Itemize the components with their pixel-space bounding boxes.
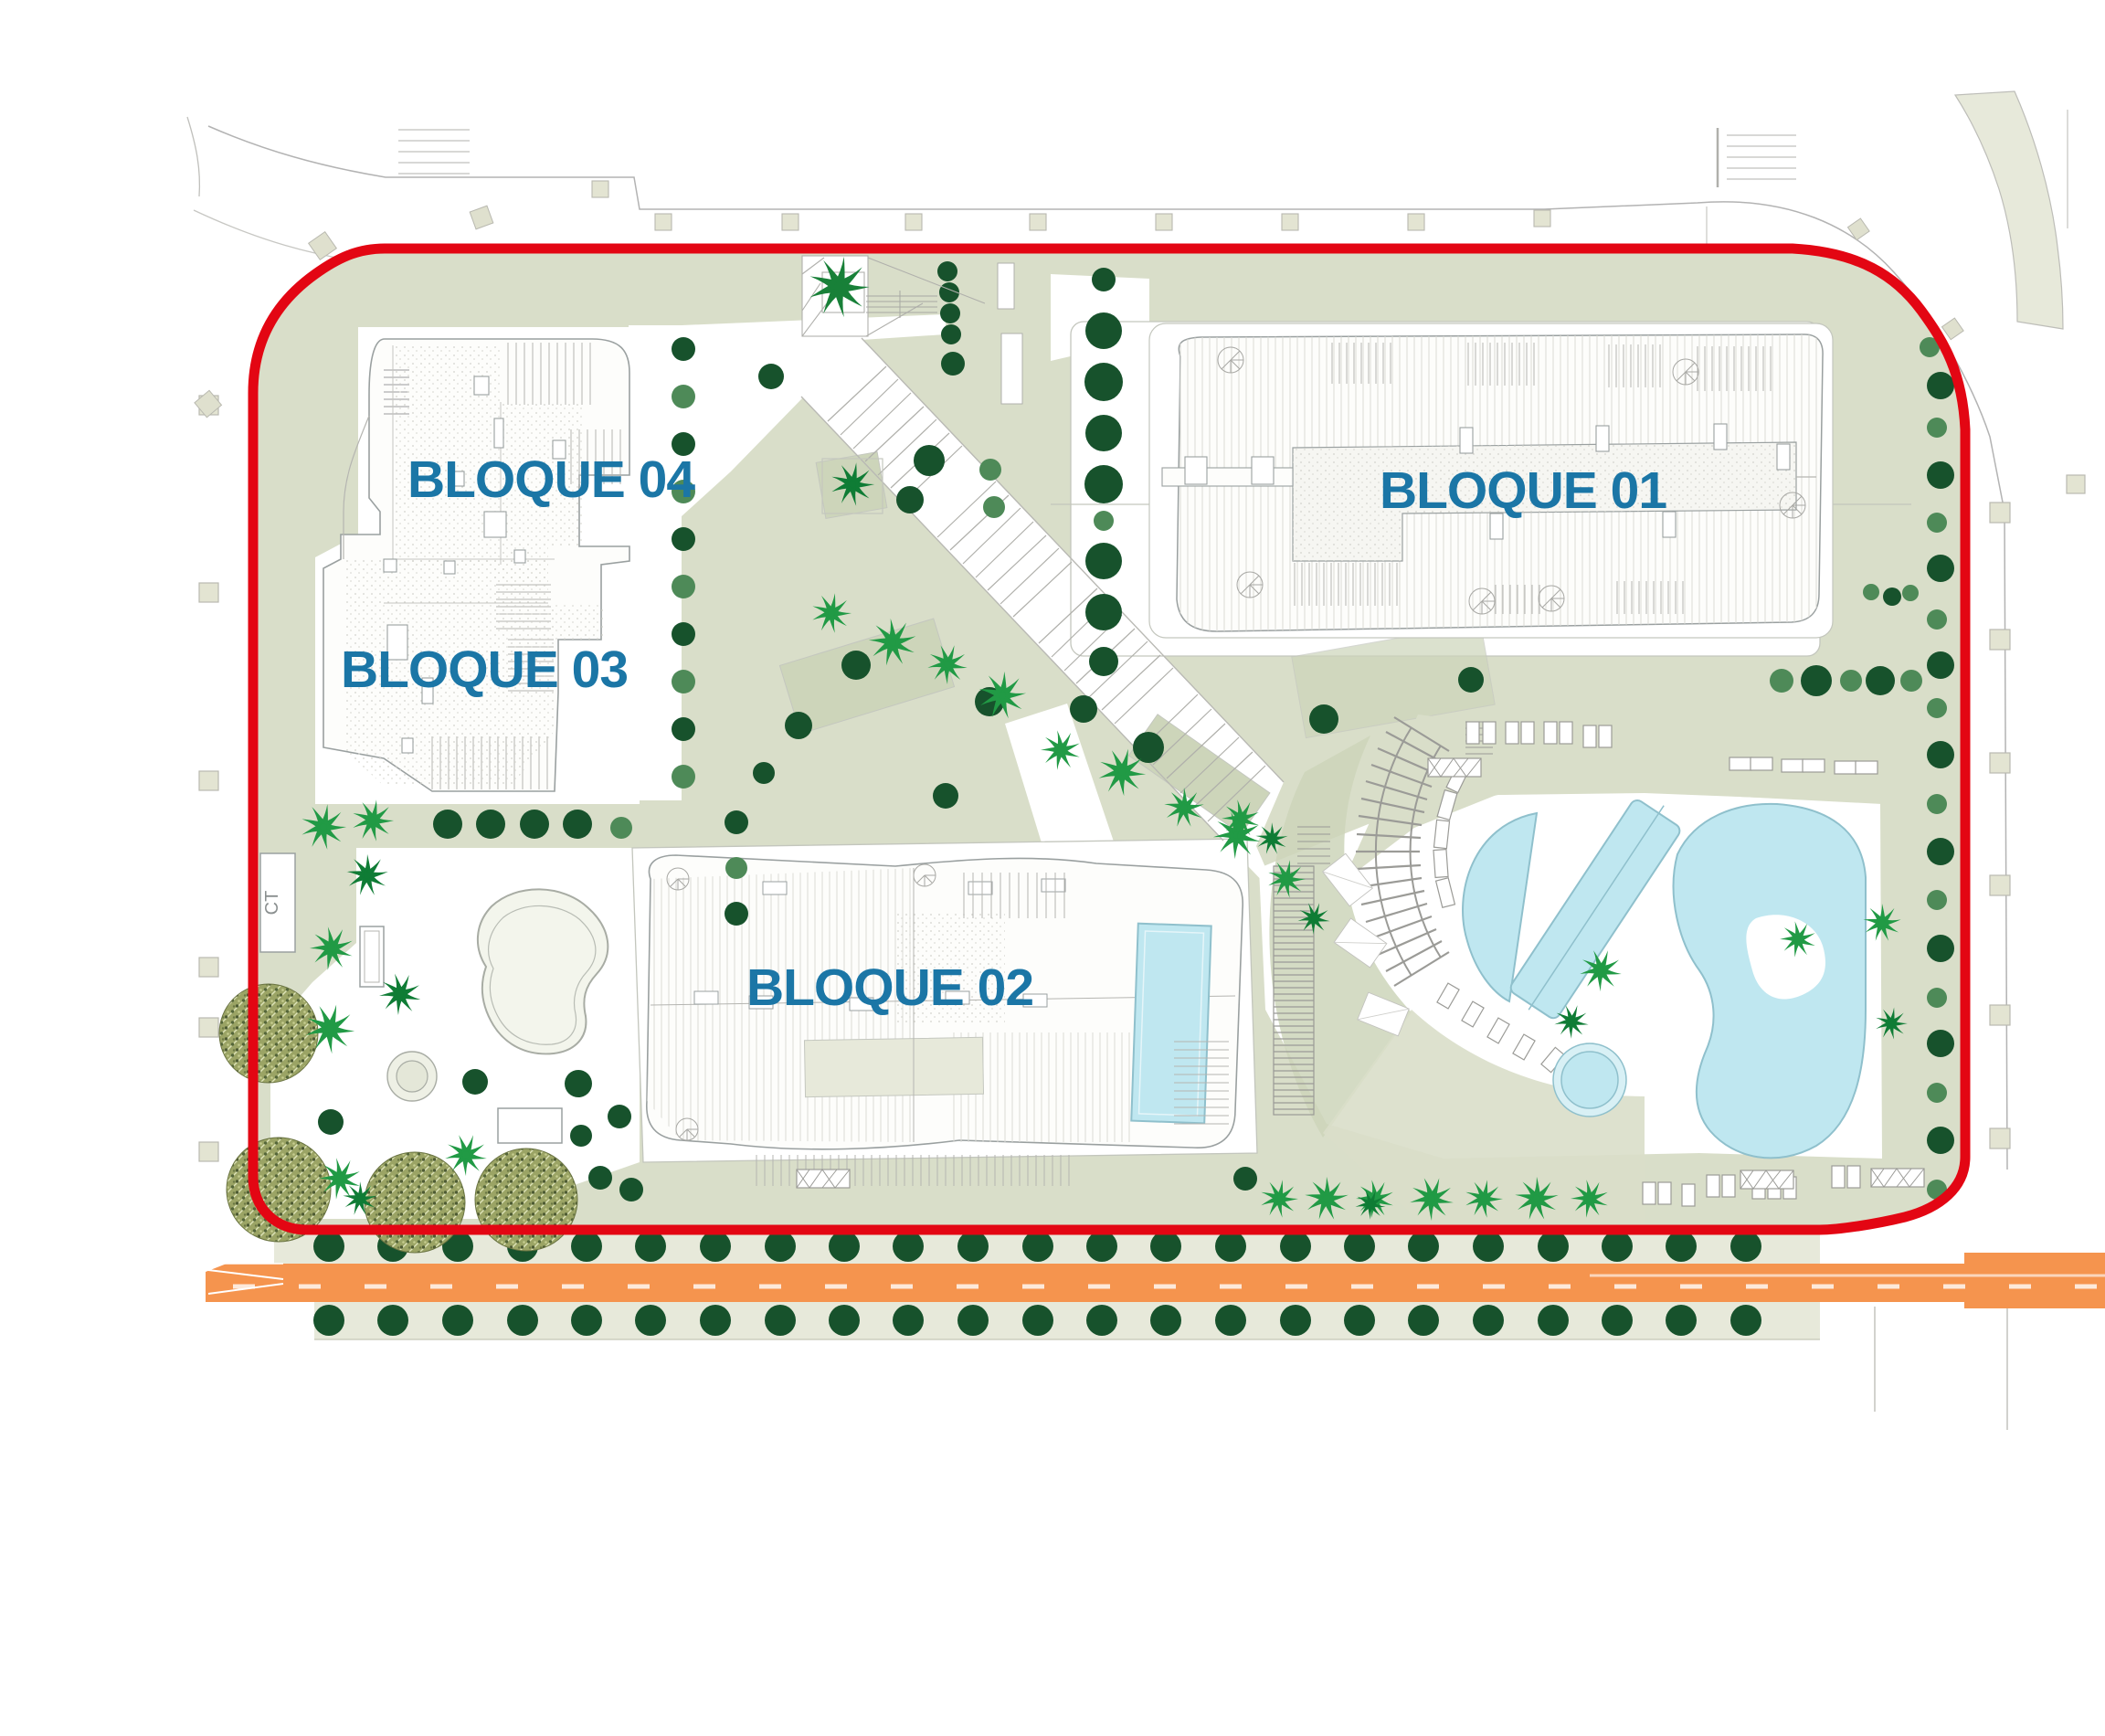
svg-text:BLOQUE 02: BLOQUE 02 (746, 958, 1033, 1017)
svg-text:CT: CT (262, 891, 282, 916)
svg-text:BLOQUE 03: BLOQUE 03 (341, 640, 628, 699)
svg-text:BLOQUE 01: BLOQUE 01 (1380, 461, 1666, 520)
svg-text:BLOQUE 04: BLOQUE 04 (407, 450, 695, 509)
